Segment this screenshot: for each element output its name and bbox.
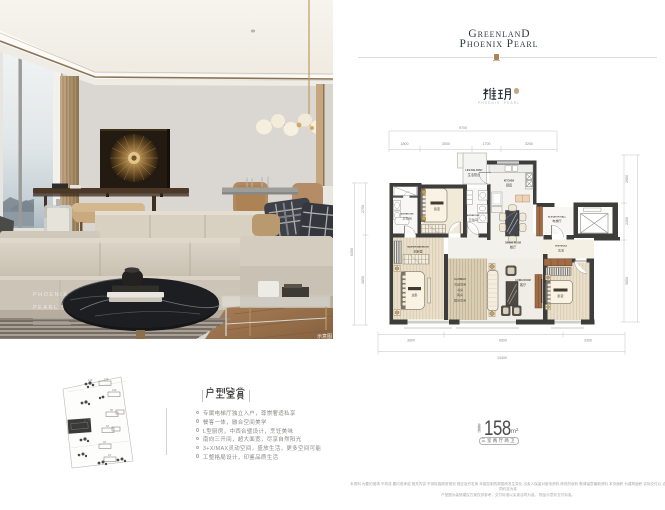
svg-text:主卧: 主卧	[411, 292, 417, 297]
svg-text:13400: 13400	[497, 356, 507, 360]
svg-text:14#: 14#	[88, 378, 93, 382]
svg-text:3300: 3300	[584, 339, 592, 343]
svg-text:餐厅: 餐厅	[510, 244, 517, 249]
svg-text:MASTER BEDROOM: MASTER BEDROOM	[407, 246, 428, 249]
svg-text:灵动空间: 灵动空间	[454, 281, 466, 286]
svg-text:6350: 6350	[350, 248, 354, 256]
svg-text:2900: 2900	[625, 175, 629, 183]
svg-text:BATHROOM: BATHROOM	[401, 213, 414, 216]
svg-text:3650: 3650	[361, 276, 365, 284]
svg-text:书房: 书房	[457, 287, 463, 292]
svg-text:LIVING ROOM: LIVING ROOM	[515, 280, 531, 282]
svg-text:VESTIBULE: VESTIBULE	[555, 246, 568, 248]
svg-text:卧室: 卧室	[434, 206, 440, 211]
svg-text:卫生间: 卫生间	[402, 215, 411, 220]
svg-text:2200: 2200	[625, 217, 629, 225]
svg-text:3200: 3200	[525, 142, 533, 146]
svg-text:LIFE BALCONY: LIFE BALCONY	[466, 169, 483, 172]
svg-text:厨房: 厨房	[506, 182, 512, 187]
svg-text:3600: 3600	[407, 339, 415, 343]
svg-text:娱乐空间: 娱乐空间	[454, 298, 466, 303]
svg-text:主卧室: 主卧室	[413, 249, 422, 254]
svg-text:12#: 12#	[104, 377, 109, 381]
svg-text:3+X/MAX: 3+X/MAX	[454, 277, 466, 281]
svg-text:9700: 9700	[459, 126, 467, 130]
svg-text:DINING ROOM: DINING ROOM	[505, 243, 521, 245]
svg-text:2700: 2700	[361, 205, 365, 213]
svg-text:生活阳台: 生活阳台	[468, 172, 481, 177]
svg-text:PHOENIX: PHOENIX	[33, 292, 68, 298]
svg-text:卧室: 卧室	[557, 293, 563, 298]
svg-text:3650: 3650	[625, 277, 629, 285]
svg-text:ELEVATOR HALL: ELEVATOR HALL	[548, 215, 567, 218]
svg-text:玄关: 玄关	[558, 247, 564, 252]
svg-text:客房: 客房	[457, 292, 463, 297]
svg-text:卫生间: 卫生间	[468, 217, 477, 222]
svg-text:KITCHEN: KITCHEN	[504, 180, 515, 182]
svg-text:PEARL: PEARL	[33, 305, 59, 311]
svg-text:电梯厅: 电梯厅	[552, 218, 561, 223]
svg-text:1800: 1800	[401, 142, 409, 146]
svg-text:3000: 3000	[442, 142, 450, 146]
svg-text:6500: 6500	[499, 339, 507, 343]
svg-text:客厅: 客厅	[520, 282, 527, 287]
svg-text:1700: 1700	[483, 142, 491, 146]
svg-text:BATHROOM: BATHROOM	[467, 214, 480, 217]
svg-text:10#: 10#	[112, 388, 117, 392]
